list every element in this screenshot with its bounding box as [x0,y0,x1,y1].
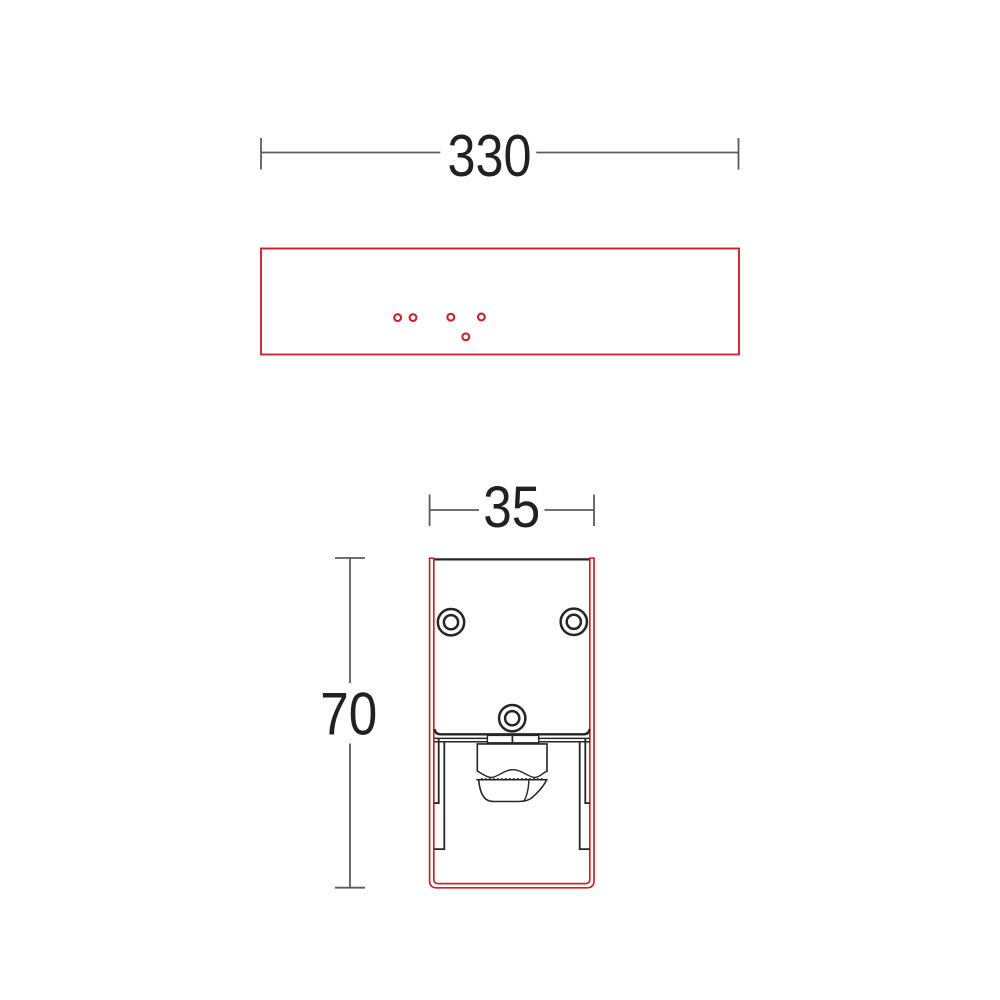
svg-text:35: 35 [483,475,540,540]
svg-text:330: 330 [448,123,532,189]
svg-text:70: 70 [320,681,377,748]
